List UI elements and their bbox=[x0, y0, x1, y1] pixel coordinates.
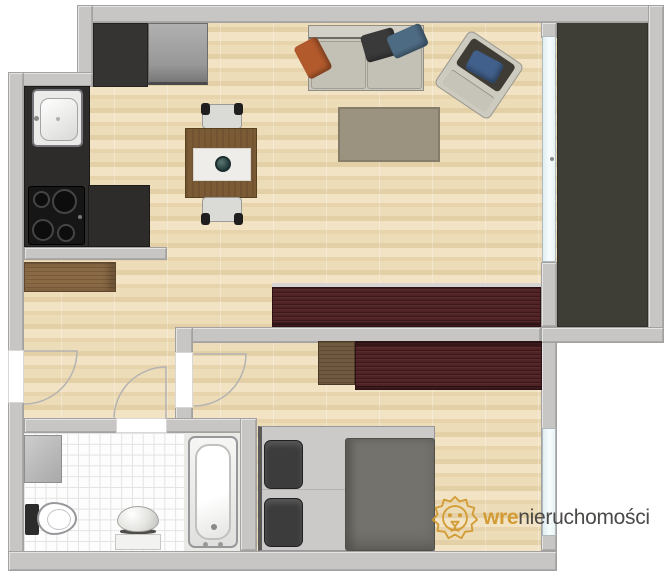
dining-chair-bottom bbox=[202, 197, 242, 222]
tall-cabinet bbox=[93, 23, 148, 87]
bed-pillow bbox=[264, 440, 303, 489]
bathtub-foot bbox=[218, 542, 223, 547]
balcony-bottom-wall bbox=[541, 327, 664, 343]
balcony-door-stub-bottom bbox=[541, 262, 557, 327]
table-bowl bbox=[215, 156, 231, 172]
cooktop bbox=[28, 186, 85, 245]
floor-plan: wrenieruchomości bbox=[0, 0, 670, 576]
balcony-glass-door bbox=[542, 36, 556, 262]
bed-pillow bbox=[264, 498, 303, 547]
left-wall bbox=[8, 72, 24, 571]
bathtub-foot bbox=[203, 542, 208, 547]
kitchen-sink bbox=[32, 89, 83, 147]
bathtub bbox=[188, 436, 238, 548]
top-wall bbox=[77, 5, 664, 23]
rug bbox=[338, 107, 440, 162]
balcony-right-wall bbox=[648, 5, 664, 343]
brand-wre: wre bbox=[483, 506, 518, 529]
bidet bbox=[117, 506, 159, 532]
bed-center-line bbox=[262, 489, 352, 490]
bedroom-door-opening bbox=[175, 352, 193, 408]
entrance-door-opening bbox=[8, 350, 24, 403]
burner-top-right bbox=[52, 189, 77, 214]
brand-text: wrenieruchomości bbox=[483, 506, 650, 530]
toilet-bowl-inner bbox=[47, 509, 71, 530]
dining-table bbox=[185, 128, 257, 198]
chair-armrest-cap bbox=[234, 213, 243, 225]
cooktop-knob bbox=[78, 215, 82, 219]
outside-notch bbox=[0, 0, 77, 72]
bathroom-right-wall bbox=[240, 418, 257, 551]
chair-armrest-cap bbox=[201, 103, 210, 115]
burner-bottom-left bbox=[32, 219, 54, 241]
balcony-door-handle bbox=[550, 157, 554, 161]
stainless-appliance bbox=[148, 23, 208, 85]
dining-chair-top bbox=[202, 104, 242, 129]
brand-nieruchomosci: nieruchomości bbox=[518, 506, 650, 529]
kitchen-counter-horizontal bbox=[88, 185, 150, 247]
washbasin-vanity bbox=[24, 435, 62, 483]
bedroom-wardrobe bbox=[355, 341, 542, 390]
bathtub-drain bbox=[211, 524, 217, 530]
lion-head-icon bbox=[432, 494, 478, 542]
balcony-floor bbox=[557, 22, 648, 327]
watermark: wrenieruchomości bbox=[432, 492, 650, 544]
hallway-cabinet bbox=[24, 262, 116, 292]
bidet-base bbox=[115, 534, 161, 550]
bedroom-dresser bbox=[318, 341, 355, 385]
kitchen-hallway-wall bbox=[24, 247, 167, 260]
chair-armrest-cap bbox=[234, 103, 243, 115]
chair-armrest-cap bbox=[201, 213, 210, 225]
bathroom-door-opening bbox=[116, 418, 167, 433]
sink-faucet bbox=[34, 116, 39, 121]
burner-top-left bbox=[33, 191, 50, 208]
sink-drain bbox=[56, 117, 60, 121]
burner-bottom-right bbox=[57, 224, 75, 242]
living-room-wardrobe bbox=[272, 287, 541, 327]
bottom-wall bbox=[8, 551, 557, 571]
bed-duvet bbox=[345, 438, 435, 551]
